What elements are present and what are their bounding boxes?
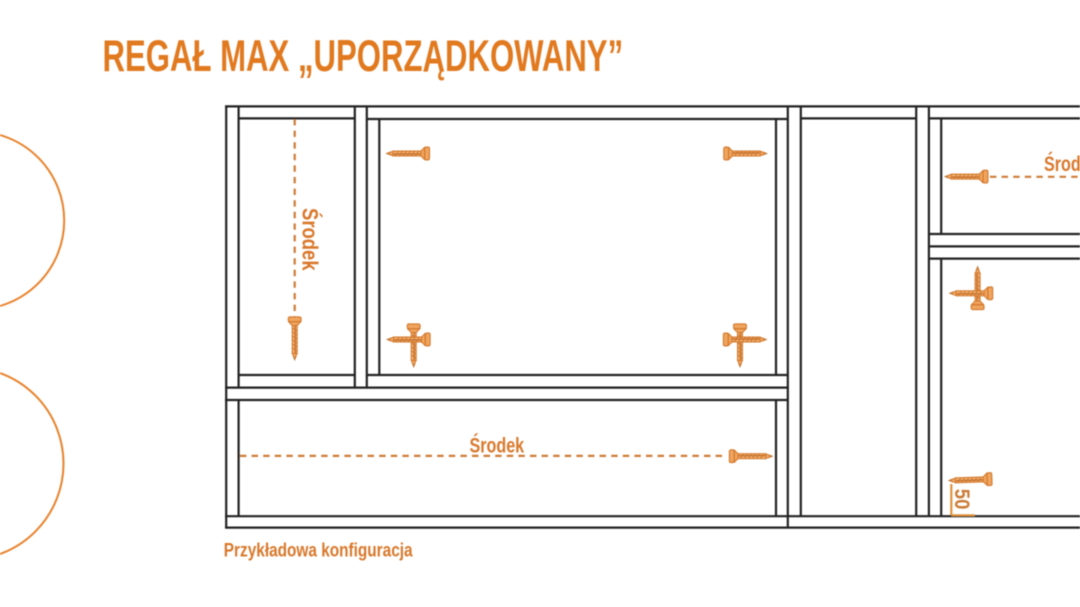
svg-text:Środek: Środek [1044, 152, 1080, 177]
svg-text:Środek: Środek [469, 433, 524, 458]
svg-text:50: 50 [950, 489, 974, 510]
svg-text:Przykładowa konfiguracja: Przykładowa konfiguracja [224, 539, 413, 561]
svg-text:Środek: Środek [297, 208, 323, 271]
svg-text:REGAŁ MAX „UPORZĄDKOWANY”: REGAŁ MAX „UPORZĄDKOWANY” [103, 32, 624, 82]
